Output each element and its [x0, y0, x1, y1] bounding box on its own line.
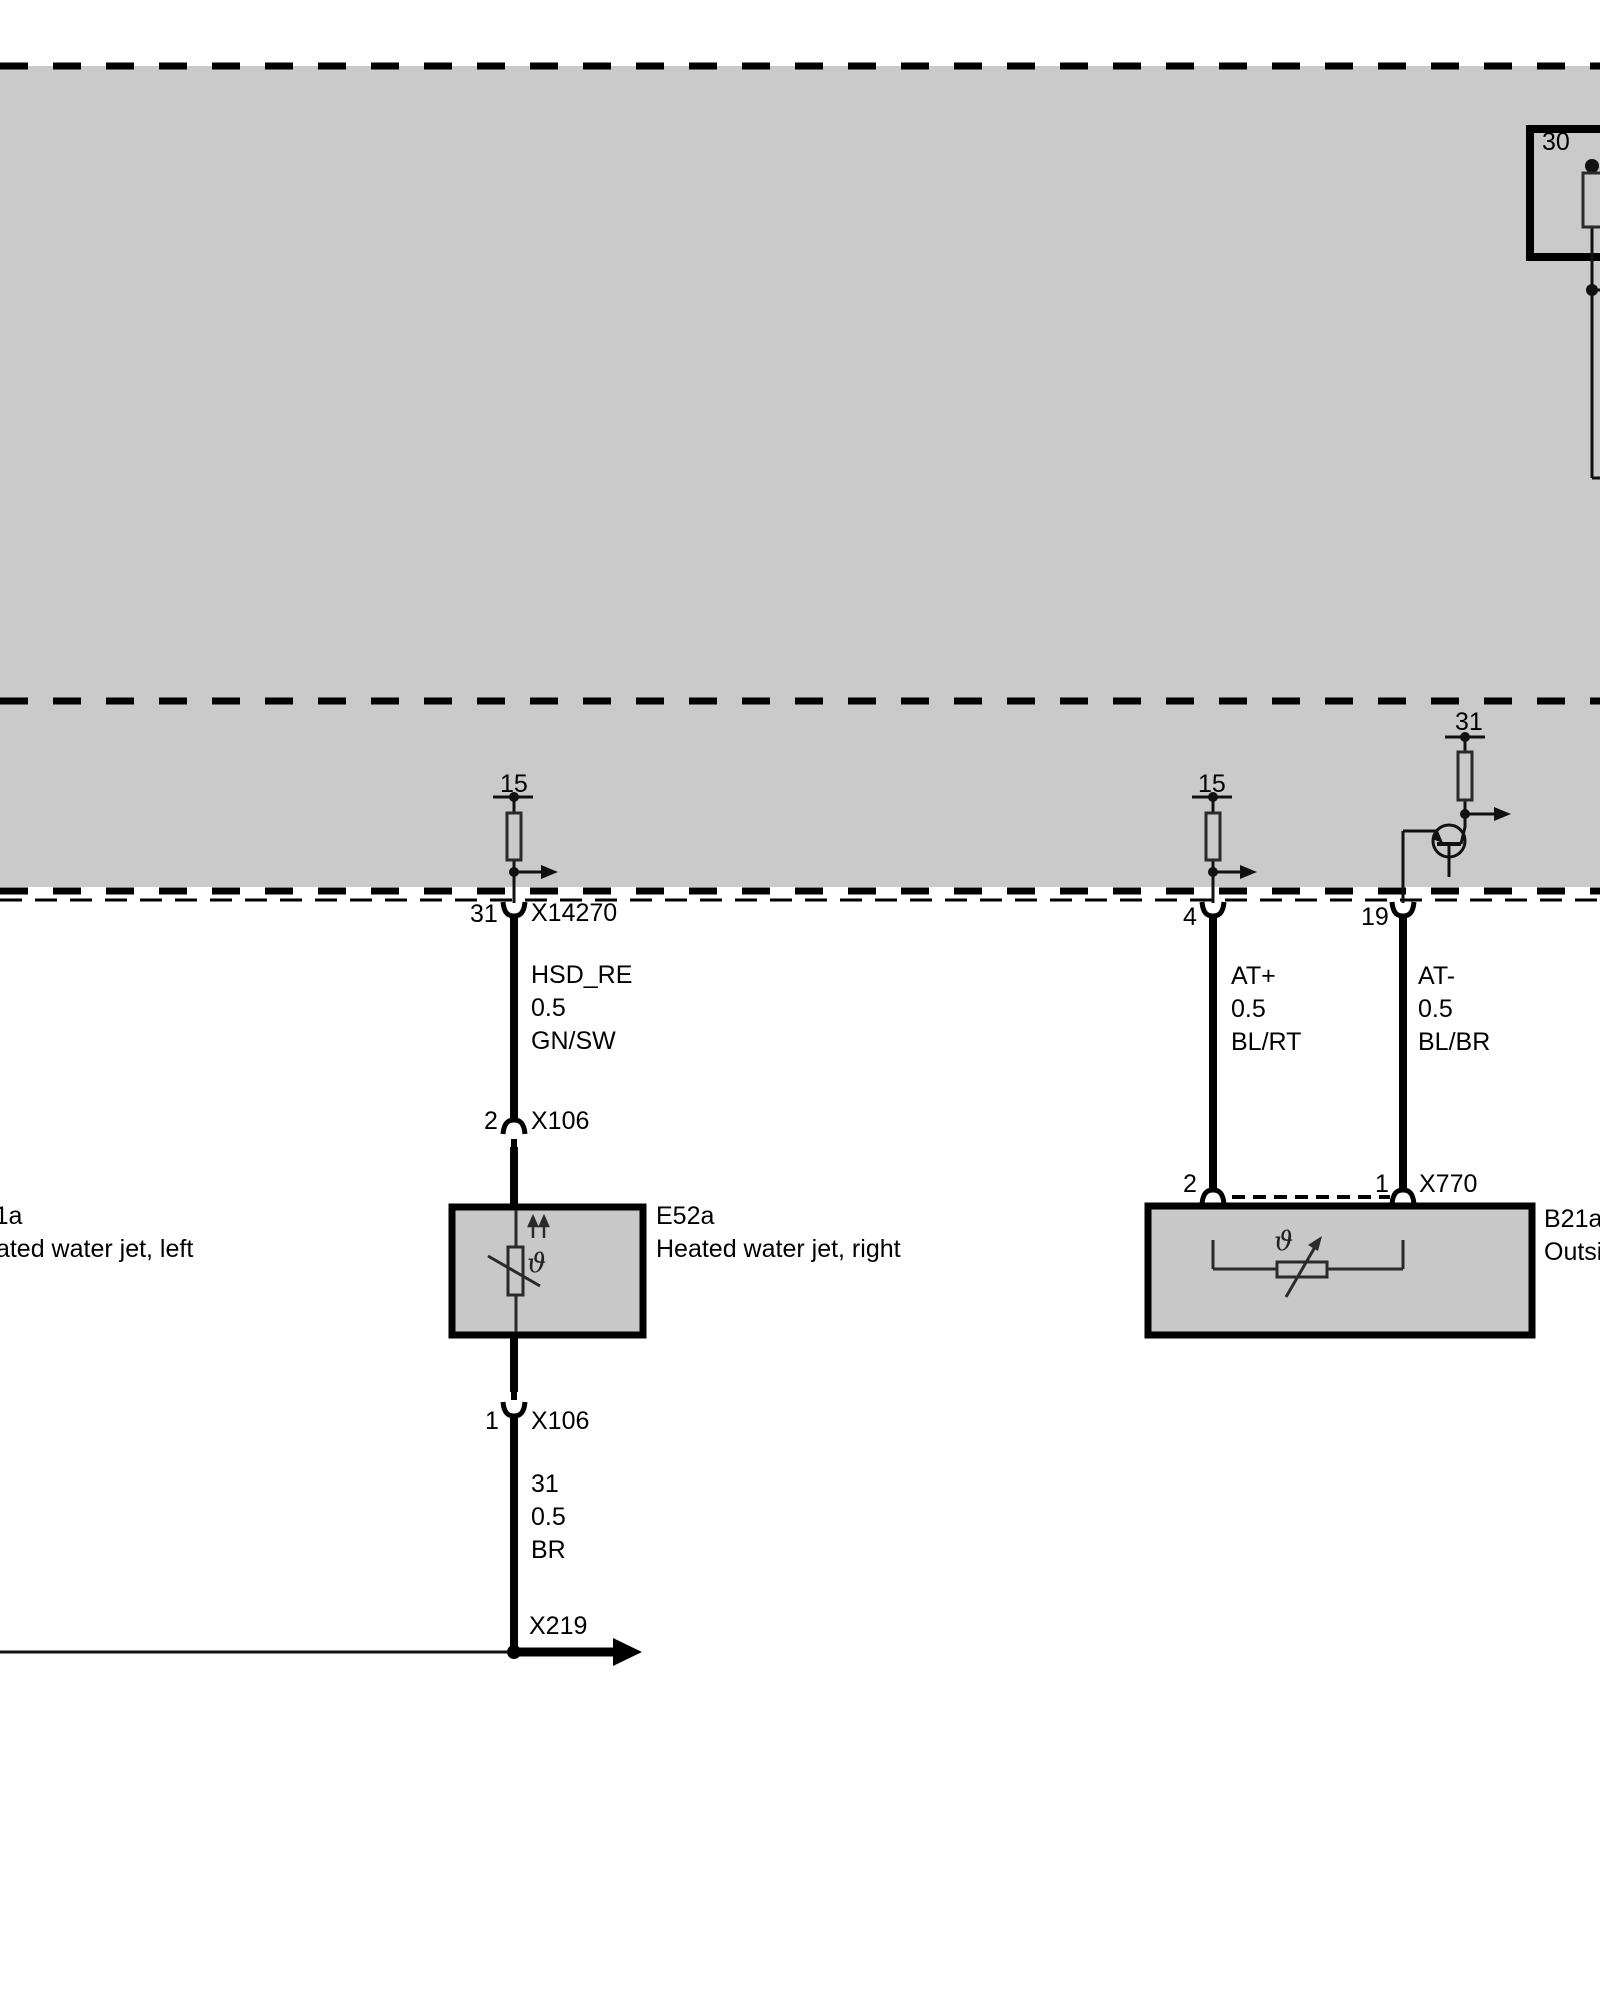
theta-symbol: ϑ: [1274, 1228, 1293, 1255]
pin-1-label: 1: [485, 1409, 499, 1434]
component-e52a-label: E52a Heated water jet, right: [656, 1200, 901, 1266]
wiring-diagram-canvas: [0, 0, 1600, 2000]
terminal-31-label: 31: [1455, 710, 1483, 735]
wiring-diagram-page: 30 15 15 31 31 X14270 HSD_RE 0.5 GN/SW 2…: [0, 0, 1600, 2000]
component-e52a: [452, 1207, 643, 1335]
pin-19-label: 19: [1361, 905, 1389, 930]
wire-label-at-plus: AT+ 0.5 BL/RT: [1231, 960, 1301, 1059]
wire-label-ground: 31 0.5 BR: [531, 1468, 566, 1567]
connector-x106-bottom-label: X106: [531, 1409, 589, 1434]
terminal-15-right-label: 15: [1198, 772, 1226, 797]
connector-x770-label: X770: [1419, 1172, 1477, 1197]
theta-symbol: ϑ: [527, 1250, 546, 1277]
pin-2-x770-label: 2: [1183, 1172, 1197, 1197]
arrow-right-icon: [613, 1638, 642, 1666]
connector-x106-top-icon: [503, 1120, 525, 1147]
pin-1-x770-label: 1: [1375, 1172, 1389, 1197]
ground-junction-x219-icon: [0, 1638, 642, 1666]
component-b21a: [1148, 1206, 1532, 1335]
component-e51a-label-clipped: E51a Heated water jet, left: [0, 1200, 193, 1266]
terminal-15-left-label: 15: [500, 772, 528, 797]
pin-31-label: 31: [470, 902, 498, 927]
wire-label-hsd-re: HSD_RE 0.5 GN/SW: [531, 959, 632, 1058]
wire-label-at-minus: AT- 0.5 BL/BR: [1418, 960, 1490, 1059]
connector-x106-bottom-icon: [503, 1392, 525, 1416]
control-module-region: [0, 66, 1600, 887]
connector-x219-label: X219: [529, 1614, 587, 1639]
connector-pin-19-icon: [1392, 902, 1414, 916]
component-b21a-label: B21a Outside temperature sensor: [1544, 1203, 1600, 1269]
connector-x14270-label: X14270: [531, 901, 617, 926]
pin-2-label: 2: [484, 1109, 498, 1134]
connector-pin-x14270-icon: [503, 902, 525, 916]
terminal-30-label: 30: [1542, 130, 1570, 155]
connector-x106-top-label: X106: [531, 1109, 589, 1134]
connector-pin-4-icon: [1202, 902, 1224, 916]
pin-4-label: 4: [1183, 905, 1197, 930]
